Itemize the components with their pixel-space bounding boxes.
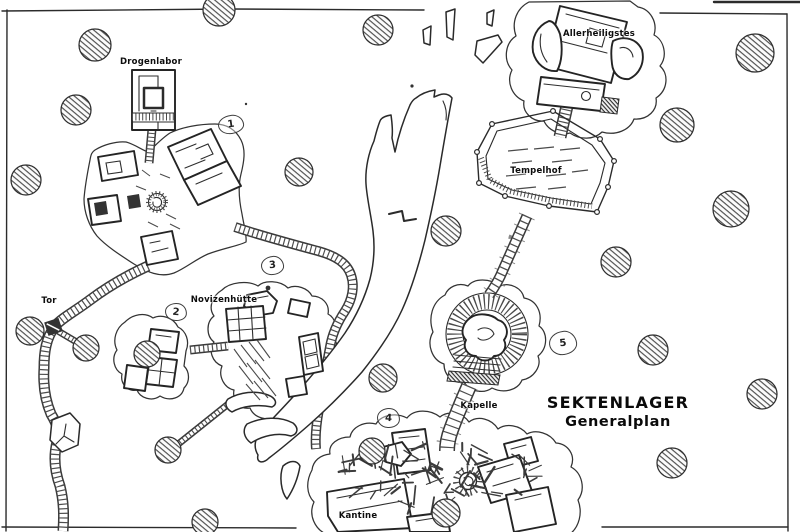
trail-path [149, 129, 152, 163]
tree-icon [11, 165, 41, 195]
drug-lab-building [132, 70, 175, 130]
tree-icon [73, 335, 99, 361]
tree-icon [657, 448, 687, 478]
tree-icon [432, 499, 460, 527]
tree-icon [16, 317, 44, 345]
tree-icon [431, 216, 461, 246]
tree-icon [638, 335, 668, 365]
tree-icon [155, 437, 181, 463]
label-drogenlabor: Drogenlabor [120, 57, 182, 67]
tree-icon [363, 15, 393, 45]
label-novizenhuette: Novizenhütte [191, 295, 258, 305]
map-canvas: DrogenlaborAllerheiligstesTempelhofNoviz… [0, 0, 800, 532]
tree-icon [285, 158, 313, 186]
label-tempelhof: Tempelhof [510, 166, 561, 176]
label-allerheiligstes: Allerheiligstes [563, 29, 635, 39]
tree-icon [369, 364, 397, 392]
tree-icon [203, 0, 235, 26]
map-title: SEKTENLAGER Generalplan [538, 393, 698, 430]
map-title-line1: SEKTENLAGER [538, 393, 698, 412]
tree-icon [134, 341, 160, 367]
tree-icon [601, 247, 631, 277]
label-tor: Tor [41, 296, 56, 306]
tree-icon [713, 191, 749, 227]
tree-icon [192, 509, 218, 532]
tree-icon [359, 438, 385, 464]
label-kantine: Kantine [339, 511, 378, 521]
tree-icon [747, 379, 777, 409]
label-kapelle: Kapelle [460, 401, 497, 411]
tree-icon [79, 29, 111, 61]
tree-icon [660, 108, 694, 142]
map-drawing [0, 0, 800, 532]
tree-icon [61, 95, 91, 125]
trail-path [190, 346, 228, 350]
tree-icon [736, 34, 774, 72]
map-title-line2: Generalplan [538, 414, 698, 430]
